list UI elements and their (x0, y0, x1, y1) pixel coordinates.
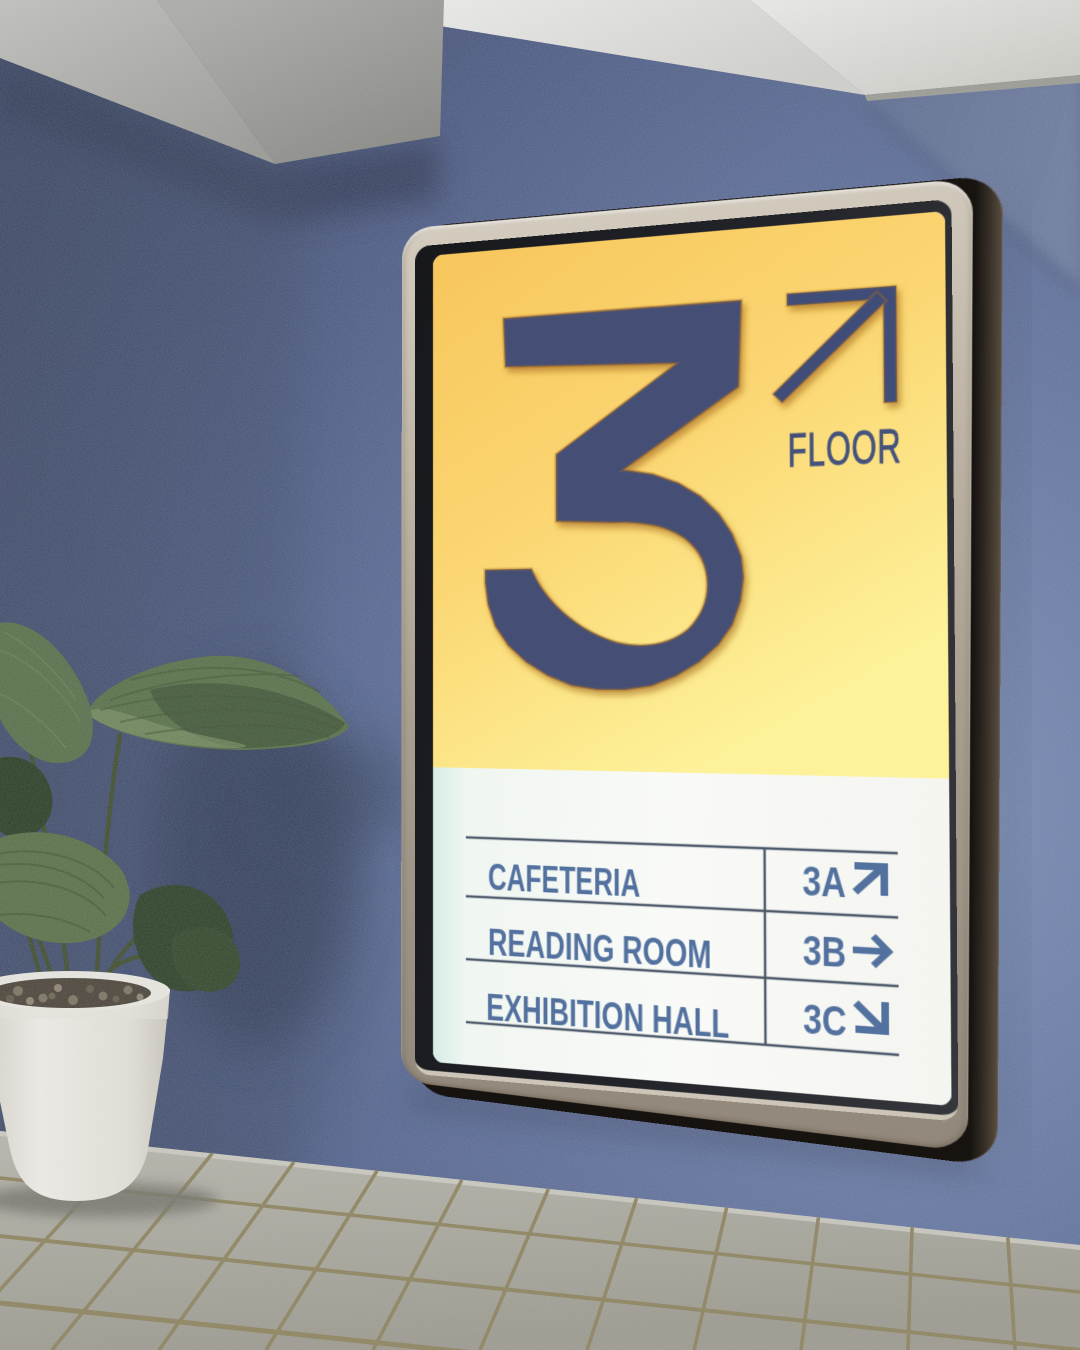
svg-text:FLOOR: FLOOR (787, 419, 901, 477)
svg-text:CAFETERIA: CAFETERIA (488, 857, 640, 906)
svg-text:3C: 3C (803, 994, 847, 1045)
svg-text:3A: 3A (802, 857, 846, 907)
svg-text:3B: 3B (803, 926, 847, 977)
